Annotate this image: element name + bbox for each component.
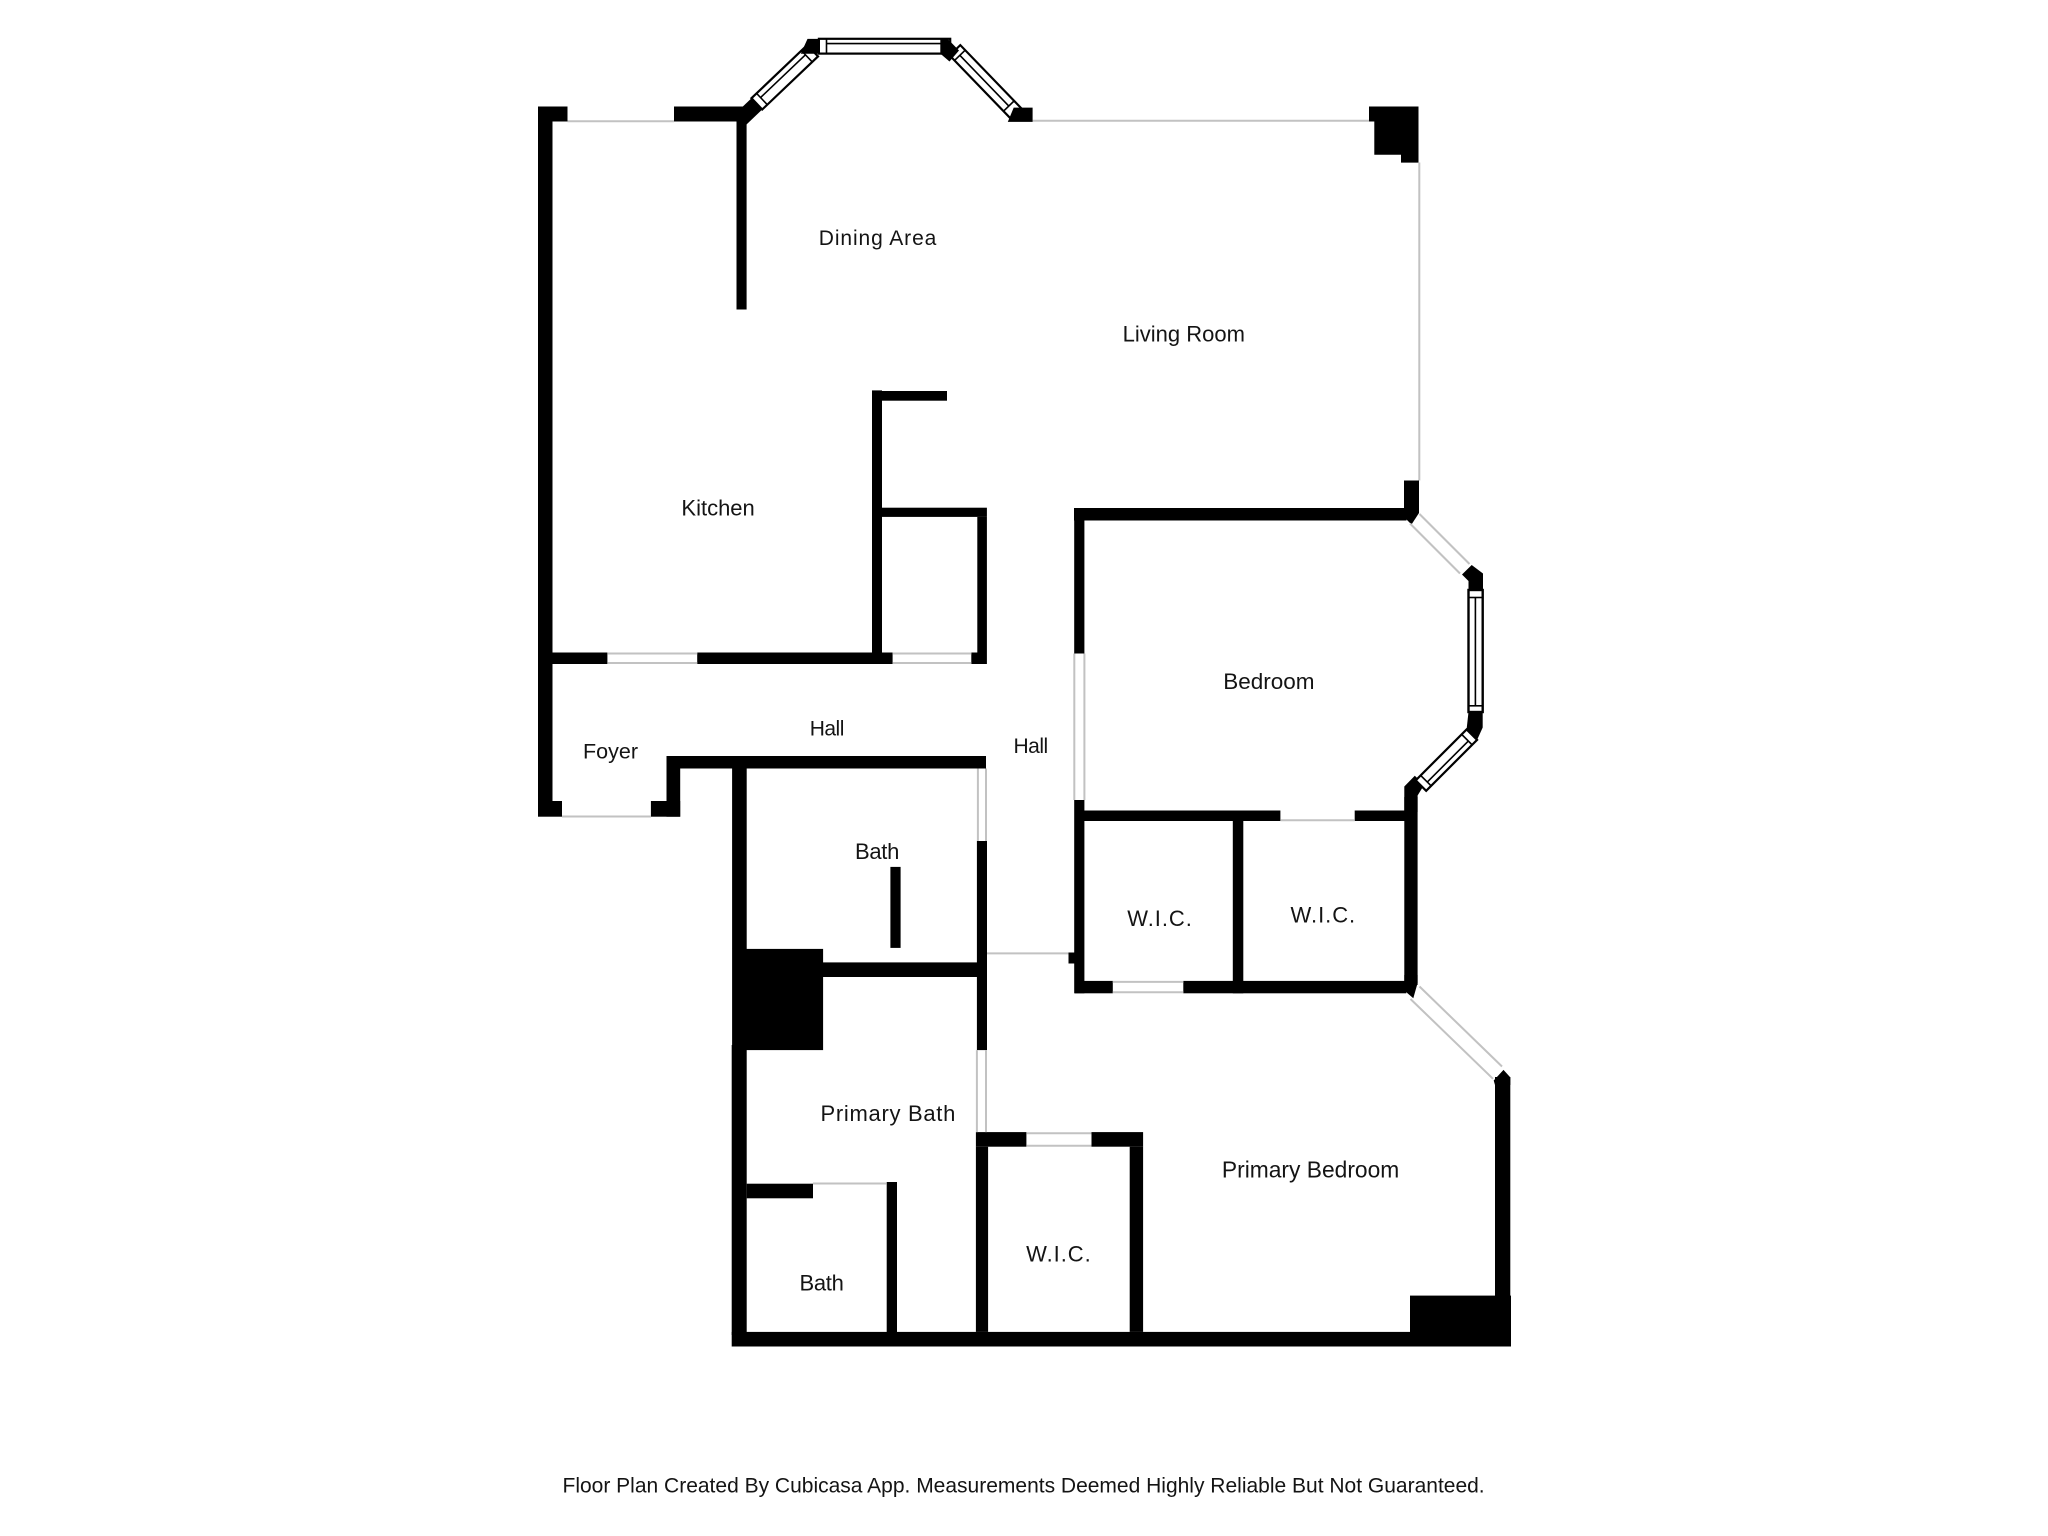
svg-text:Primary Bedroom: Primary Bedroom xyxy=(1222,1157,1399,1183)
svg-text:W.I.C.: W.I.C. xyxy=(1291,903,1357,928)
svg-text:Kitchen: Kitchen xyxy=(681,496,754,521)
svg-text:Floor Plan Created By Cubicasa: Floor Plan Created By Cubicasa App. Meas… xyxy=(563,1475,1485,1498)
svg-text:W.I.C.: W.I.C. xyxy=(1127,906,1193,931)
svg-text:Primary Bath: Primary Bath xyxy=(821,1101,957,1126)
svg-text:Bath: Bath xyxy=(855,839,899,864)
svg-text:W.I.C.: W.I.C. xyxy=(1026,1242,1092,1267)
svg-text:Foyer: Foyer xyxy=(583,740,638,764)
svg-text:Hall: Hall xyxy=(810,718,844,741)
svg-text:Bedroom: Bedroom xyxy=(1223,669,1314,694)
svg-text:Bath: Bath xyxy=(799,1271,843,1296)
svg-text:Living Room: Living Room xyxy=(1123,321,1245,346)
svg-text:Hall: Hall xyxy=(1014,735,1048,758)
svg-text:Dining Area: Dining Area xyxy=(819,227,937,250)
